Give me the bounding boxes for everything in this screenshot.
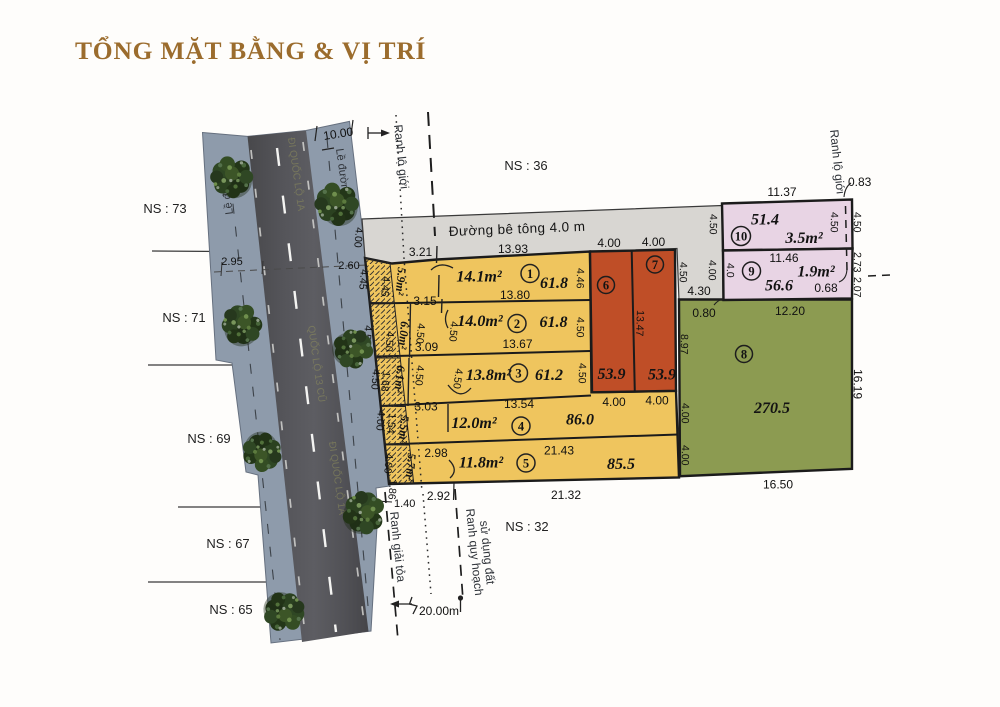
svg-text:2.60: 2.60 xyxy=(338,260,359,272)
svg-text:3.15: 3.15 xyxy=(413,294,437,308)
svg-text:11.46: 11.46 xyxy=(769,251,798,265)
svg-text:9: 9 xyxy=(748,264,754,278)
svg-text:4.30: 4.30 xyxy=(687,284,711,298)
svg-text:4.00: 4.00 xyxy=(679,403,691,424)
svg-text:13.54: 13.54 xyxy=(504,397,534,411)
svg-text:4.50: 4.50 xyxy=(851,212,863,233)
svg-text:16.50: 16.50 xyxy=(763,478,793,492)
svg-text:270.5: 270.5 xyxy=(753,400,790,417)
svg-text:4.45: 4.45 xyxy=(356,269,370,291)
svg-text:2.07: 2.07 xyxy=(851,277,863,298)
svg-text:4.50: 4.50 xyxy=(574,317,586,338)
svg-text:NS : 32: NS : 32 xyxy=(505,519,548,534)
svg-text:5: 5 xyxy=(523,456,529,470)
svg-text:13.80: 13.80 xyxy=(500,288,530,302)
svg-text:3.21: 3.21 xyxy=(409,245,433,259)
svg-text:0.83: 0.83 xyxy=(848,175,872,189)
svg-text:8.97: 8.97 xyxy=(678,334,690,355)
svg-text:3.09: 3.09 xyxy=(415,340,439,354)
svg-text:NS : 65: NS : 65 xyxy=(209,602,252,617)
svg-text:5.9m²: 5.9m² xyxy=(393,267,409,296)
svg-text:13.67: 13.67 xyxy=(502,337,532,351)
svg-text:56.6: 56.6 xyxy=(765,278,793,295)
svg-text:4.50: 4.50 xyxy=(446,321,460,343)
svg-text:4.00: 4.00 xyxy=(679,445,691,466)
svg-text:5.7m²: 5.7m² xyxy=(403,453,419,482)
svg-text:13.93: 13.93 xyxy=(498,242,528,256)
svg-text:4.00: 4.00 xyxy=(381,453,395,475)
svg-text:4: 4 xyxy=(518,419,525,433)
svg-text:1.54: 1.54 xyxy=(384,413,398,435)
svg-text:53.9: 53.9 xyxy=(648,367,676,384)
svg-text:13.47: 13.47 xyxy=(633,310,646,337)
svg-text:4.50: 4.50 xyxy=(576,363,588,384)
svg-text:2: 2 xyxy=(514,317,520,331)
svg-text:20.00m: 20.00m xyxy=(419,604,459,618)
svg-text:4.50: 4.50 xyxy=(412,365,426,387)
svg-text:10: 10 xyxy=(735,229,748,243)
svg-text:3: 3 xyxy=(515,366,521,380)
svg-text:1.9m²: 1.9m² xyxy=(797,264,835,281)
svg-text:0.80: 0.80 xyxy=(692,306,716,320)
svg-text:2.92: 2.92 xyxy=(427,489,451,503)
svg-text:13.8m²: 13.8m² xyxy=(466,367,512,384)
svg-text:6: 6 xyxy=(603,278,609,292)
svg-text:4.50: 4.50 xyxy=(382,331,396,353)
svg-text:16.19: 16.19 xyxy=(850,369,865,400)
svg-text:1.86: 1.86 xyxy=(385,479,399,501)
svg-text:61.8: 61.8 xyxy=(540,275,568,292)
svg-text:61.2: 61.2 xyxy=(535,367,563,384)
svg-text:14.1m²: 14.1m² xyxy=(456,269,502,286)
svg-text:4.00: 4.00 xyxy=(645,394,669,408)
svg-text:NS : 67: NS : 67 xyxy=(206,536,249,551)
svg-text:TỔNG MẶT BẰNG & VỊ TRÍ: TỔNG MẶT BẰNG & VỊ TRÍ xyxy=(75,36,426,65)
svg-text:NS : 69: NS : 69 xyxy=(187,431,230,446)
svg-text:7: 7 xyxy=(652,258,658,272)
svg-text:NS : 71: NS : 71 xyxy=(162,310,205,325)
svg-text:21.43: 21.43 xyxy=(544,444,574,458)
svg-text:85.5: 85.5 xyxy=(607,456,635,473)
svg-text:4.50: 4.50 xyxy=(828,212,840,233)
svg-text:4.00: 4.00 xyxy=(706,260,718,281)
svg-text:86.0: 86.0 xyxy=(566,412,594,429)
svg-text:11.37: 11.37 xyxy=(767,185,796,199)
svg-text:61.8: 61.8 xyxy=(540,314,568,331)
svg-text:4.50: 4.50 xyxy=(707,214,719,235)
svg-text:4.0: 4.0 xyxy=(724,263,736,278)
svg-text:0.68: 0.68 xyxy=(814,281,838,295)
svg-text:4.45: 4.45 xyxy=(378,276,392,298)
svg-text:1.68: 1.68 xyxy=(378,371,392,393)
svg-text:2.95: 2.95 xyxy=(221,256,242,268)
svg-text:8: 8 xyxy=(741,347,747,361)
svg-text:12.20: 12.20 xyxy=(775,304,805,318)
svg-text:2.73: 2.73 xyxy=(851,252,863,273)
svg-text:4.50: 4.50 xyxy=(677,262,689,283)
svg-text:14.0m²: 14.0m² xyxy=(457,313,503,330)
svg-text:6.0m²: 6.0m² xyxy=(396,321,412,350)
svg-text:NS : 73: NS : 73 xyxy=(143,201,186,216)
svg-text:51.4: 51.4 xyxy=(751,212,779,229)
svg-text:2.98: 2.98 xyxy=(424,446,448,460)
svg-text:6.1m²: 6.1m² xyxy=(392,365,408,394)
svg-text:21.32: 21.32 xyxy=(551,488,581,502)
svg-text:4.00: 4.00 xyxy=(642,235,666,249)
svg-text:3.5m²: 3.5m² xyxy=(784,230,823,247)
svg-text:3.03: 3.03 xyxy=(414,400,438,414)
svg-text:12.0m²: 12.0m² xyxy=(451,415,497,432)
svg-text:4.46: 4.46 xyxy=(574,268,586,289)
svg-text:NS : 36: NS : 36 xyxy=(504,158,547,173)
svg-text:4.00: 4.00 xyxy=(602,395,626,409)
svg-text:4.00: 4.00 xyxy=(597,236,621,250)
svg-text:11.8m²: 11.8m² xyxy=(459,455,505,472)
svg-text:1: 1 xyxy=(527,267,533,281)
svg-text:53.9: 53.9 xyxy=(598,366,626,383)
